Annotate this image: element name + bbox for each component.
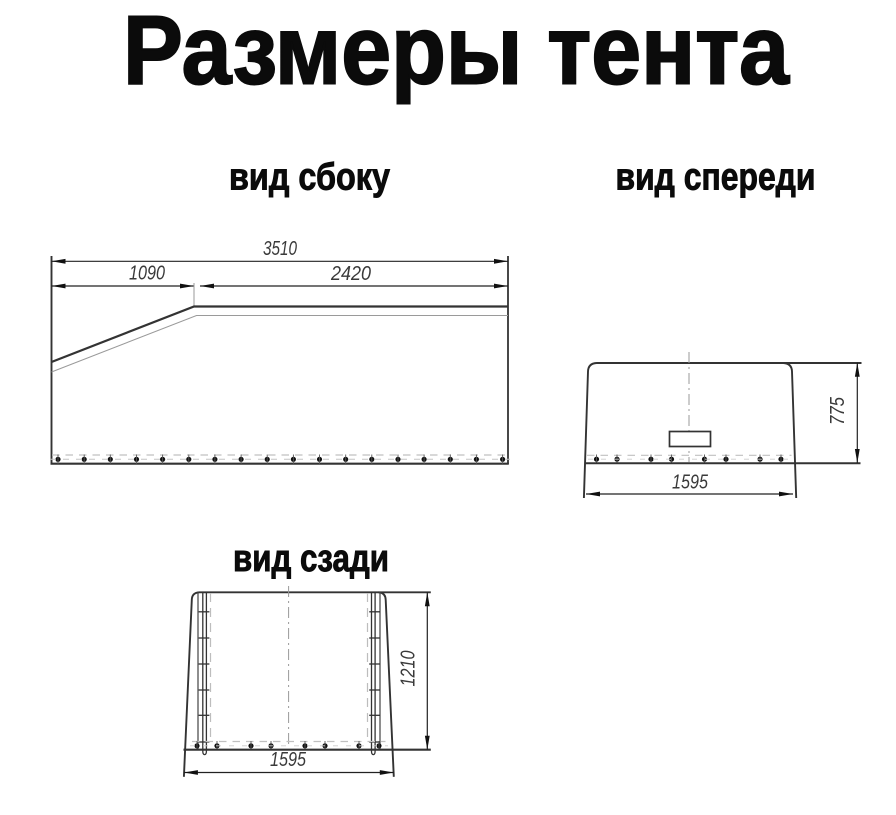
svg-text:1090: 1090	[129, 263, 165, 285]
svg-text:1595: 1595	[270, 749, 307, 771]
svg-text:вид сбоку: вид сбоку	[229, 157, 390, 199]
svg-text:2420: 2420	[330, 263, 371, 285]
svg-text:вид спереди: вид спереди	[616, 157, 816, 199]
svg-text:3510: 3510	[263, 238, 297, 260]
svg-text:1210: 1210	[398, 651, 420, 687]
svg-text:1595: 1595	[672, 472, 709, 494]
svg-text:775: 775	[827, 396, 849, 425]
svg-text:вид сзади: вид сзади	[233, 538, 389, 580]
svg-text:Размеры тента: Размеры тента	[123, 0, 790, 105]
